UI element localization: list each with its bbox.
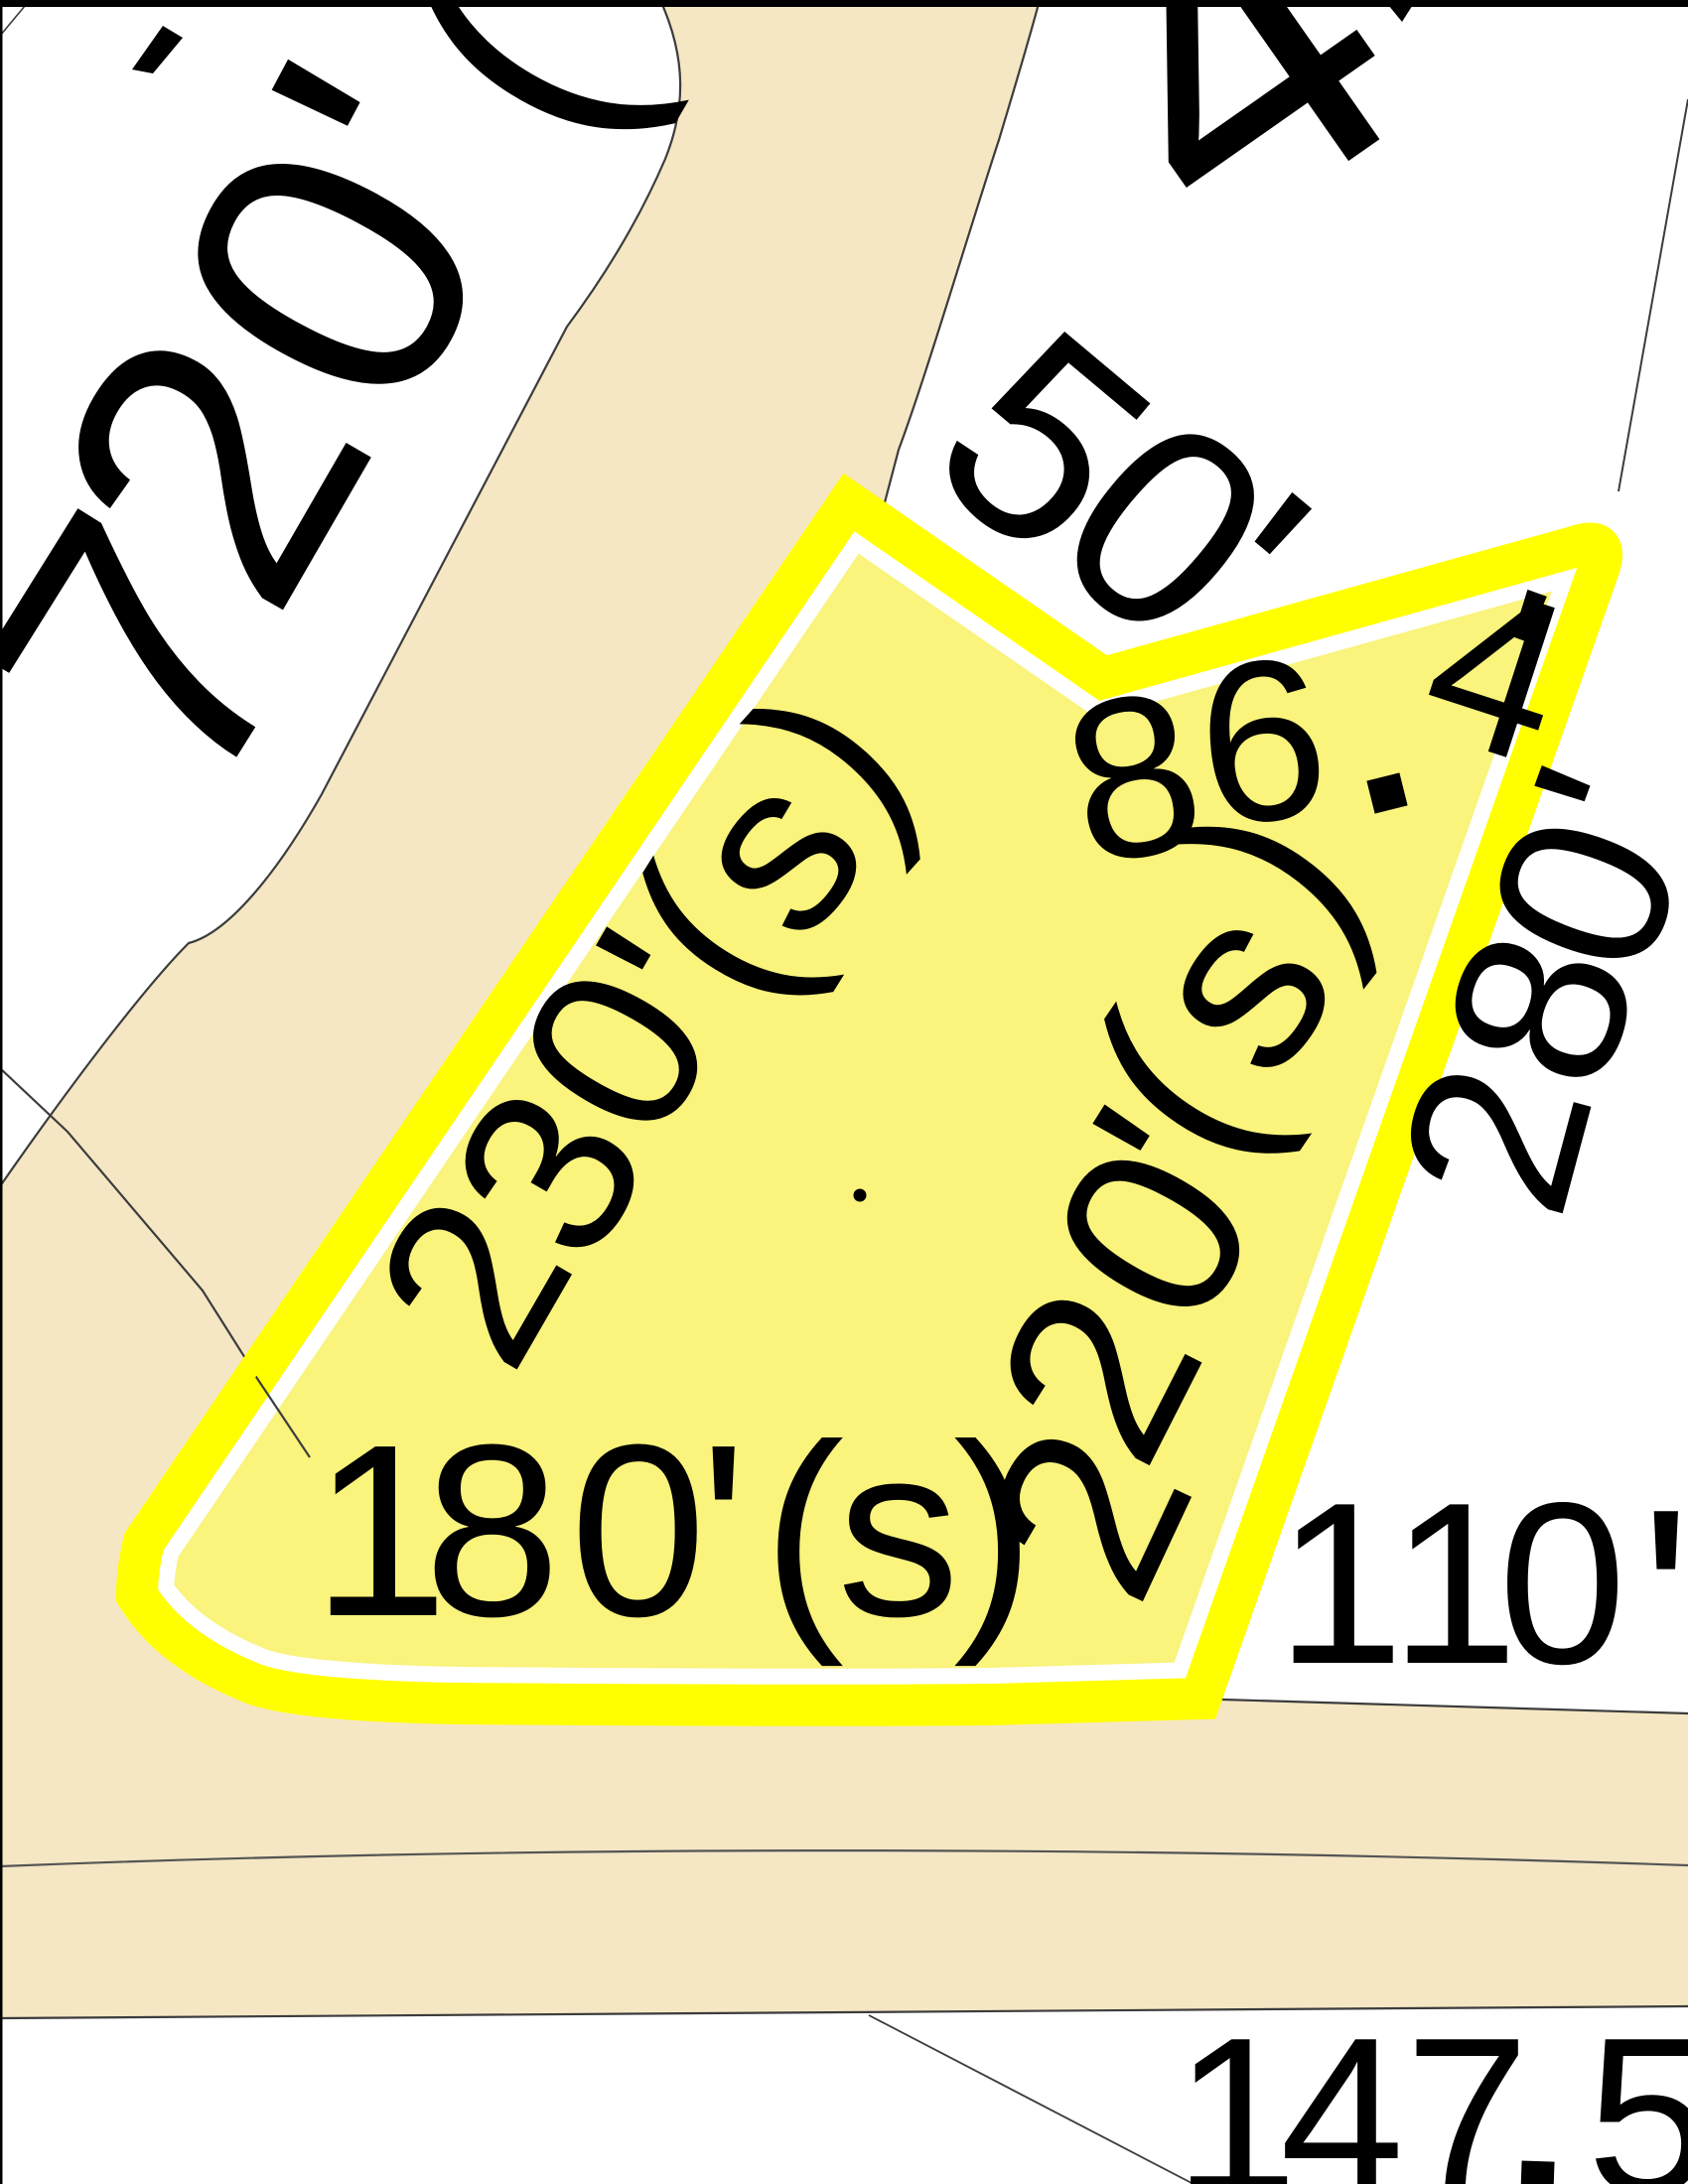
svg-text:110: 110	[1276, 1455, 1626, 1712]
svg-text:': '	[1640, 1454, 1688, 1753]
svg-text:180'(s): 180'(s)	[312, 1394, 1035, 1668]
svg-text:1475: 1475	[1174, 1990, 1688, 2184]
